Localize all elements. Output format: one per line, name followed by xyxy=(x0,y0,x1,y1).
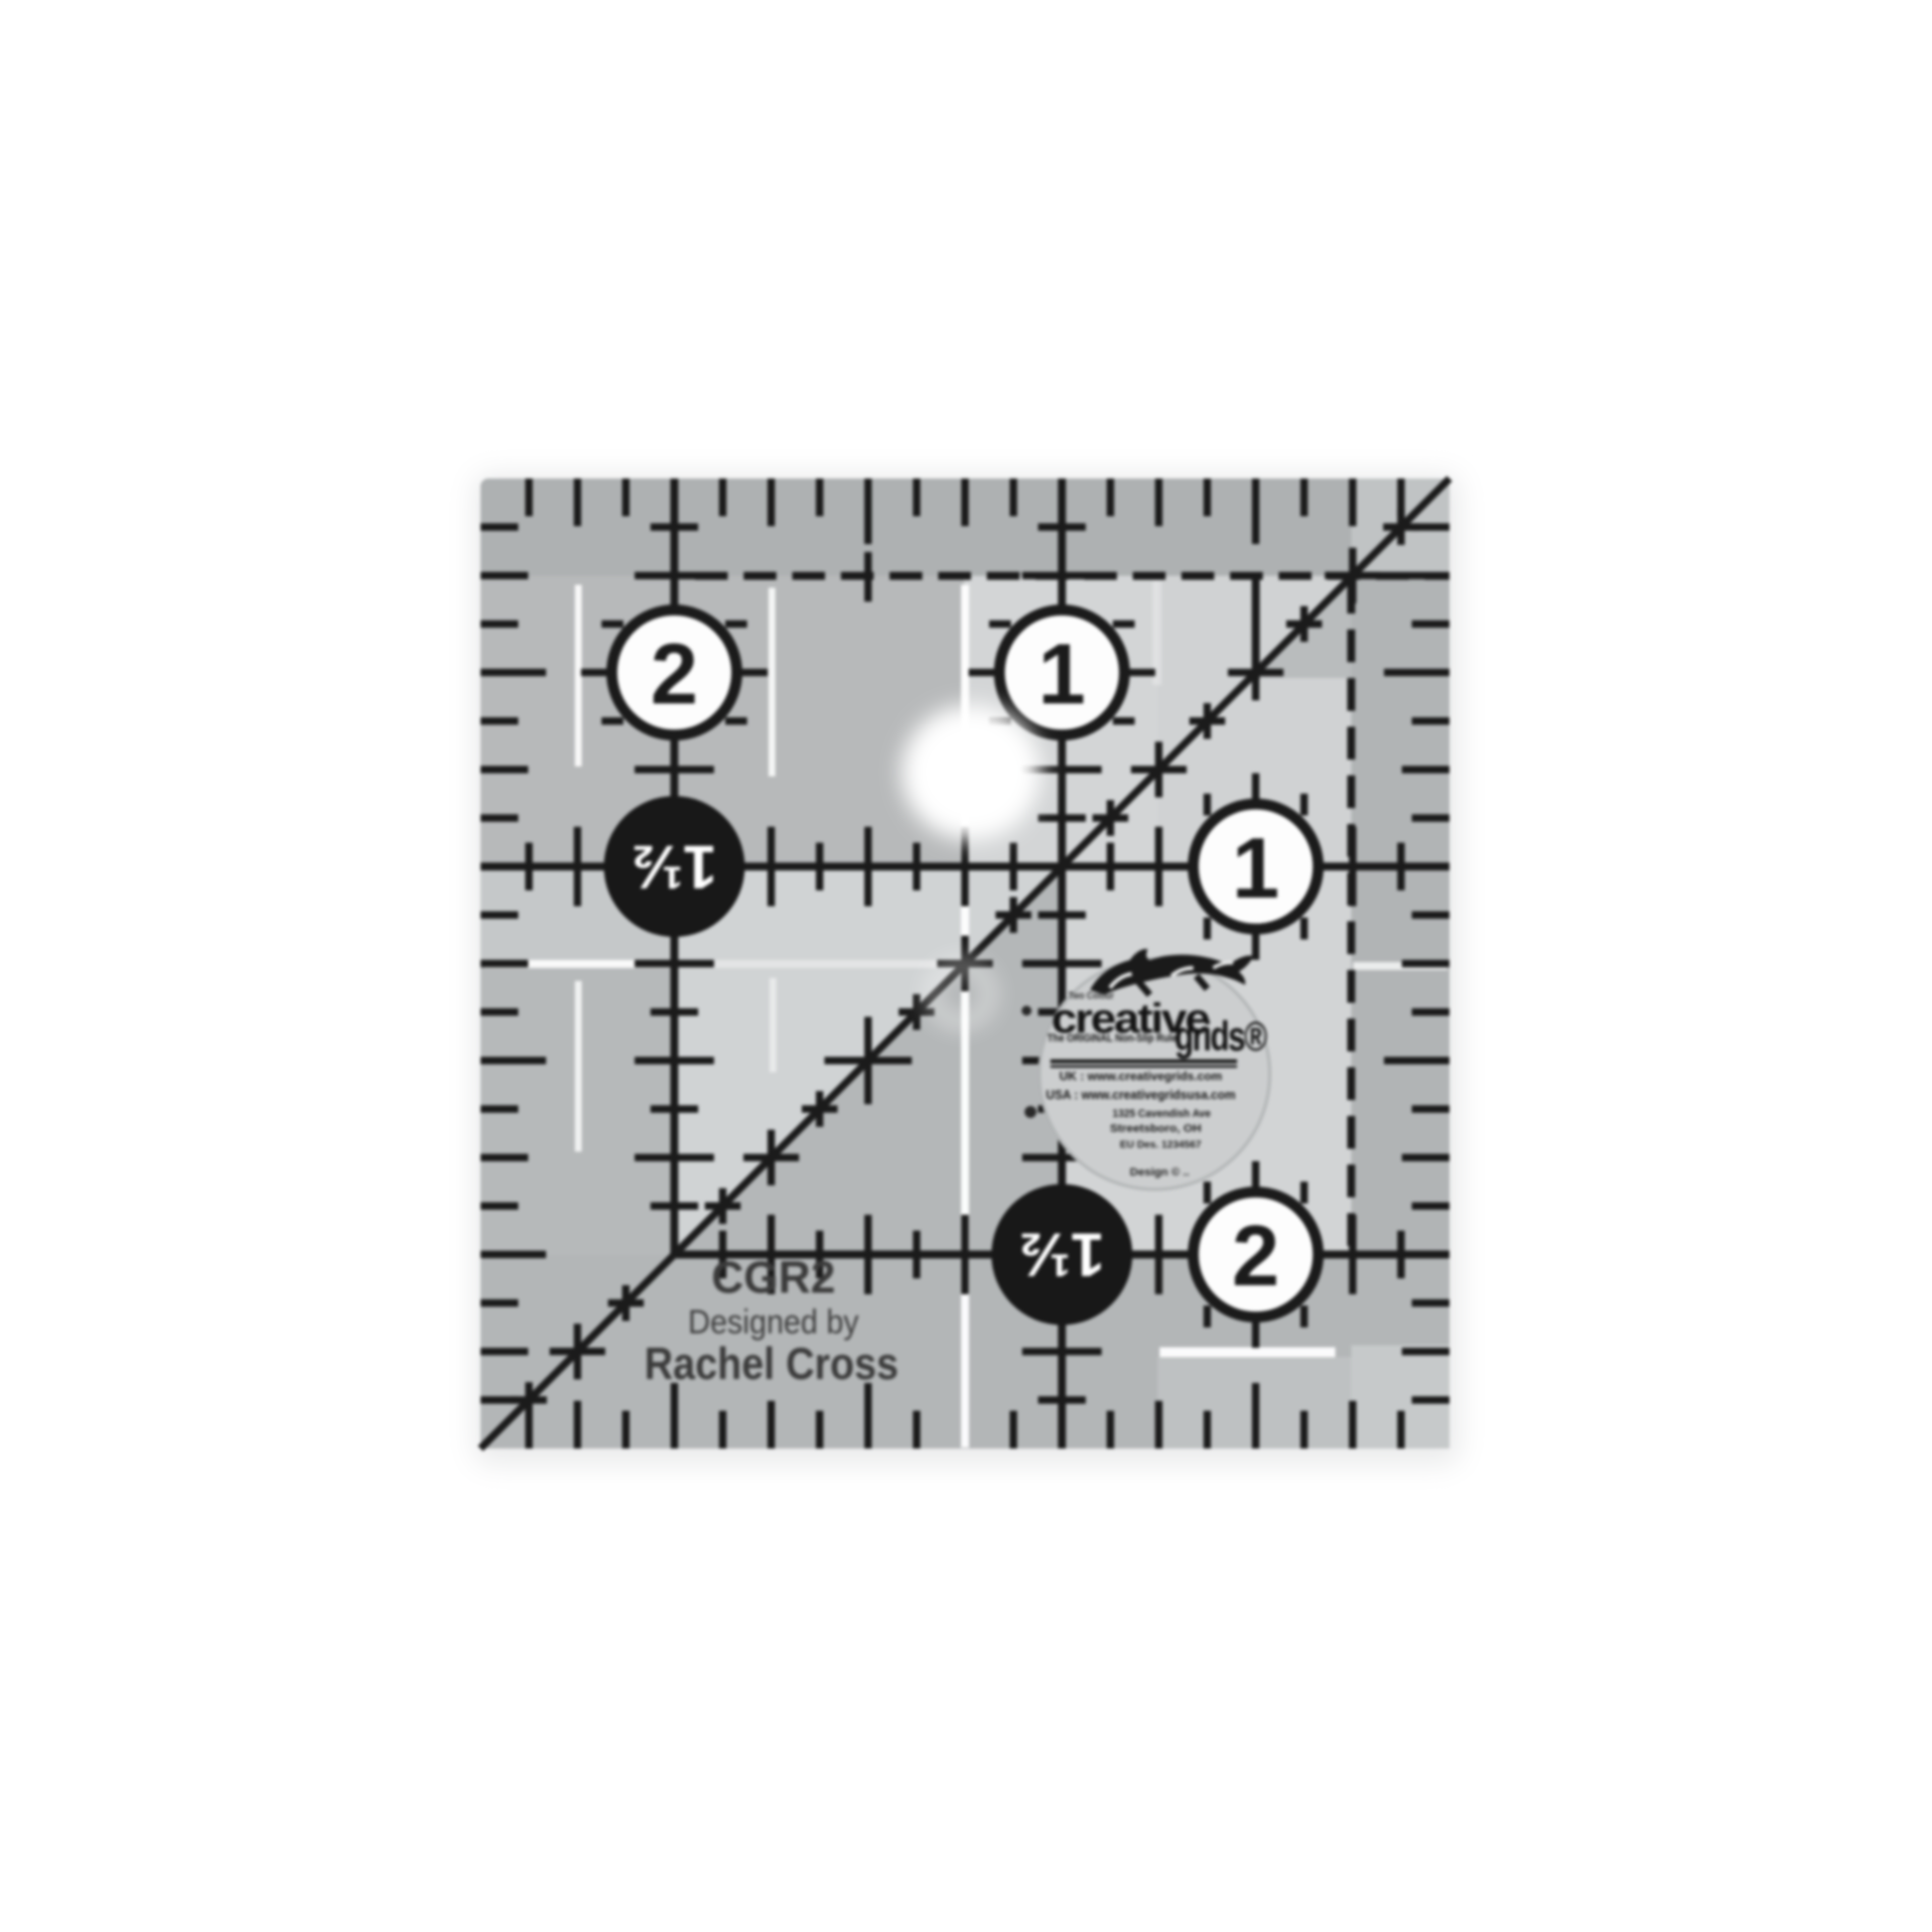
svg-text:1½: 1½ xyxy=(1019,1220,1104,1289)
svg-text:The ORIGINAL Non-Slip Ruler: The ORIGINAL Non-Slip Ruler xyxy=(1047,1033,1181,1044)
svg-text:EU Des. 1234567: EU Des. 1234567 xyxy=(1120,1139,1201,1151)
svg-text:Designed by: Designed by xyxy=(688,1304,859,1341)
svg-text:grids®: grids® xyxy=(1174,1013,1268,1059)
svg-text:1: 1 xyxy=(1232,821,1280,916)
svg-text:Design © ..: Design © .. xyxy=(1130,1167,1189,1178)
svg-text:Rachel Cross: Rachel Cross xyxy=(644,1338,898,1389)
svg-text:2: 2 xyxy=(1232,1209,1280,1305)
svg-text:UK : www.creativegrids.com: UK : www.creativegrids.com xyxy=(1059,1069,1222,1083)
svg-text:1: 1 xyxy=(1038,626,1086,722)
svg-text:2: 2 xyxy=(650,626,698,722)
svg-text:1½: 1½ xyxy=(631,832,717,900)
svg-text:CGR2: CGR2 xyxy=(711,1252,835,1303)
svg-text:1325 Cavendish Ave: 1325 Cavendish Ave xyxy=(1113,1108,1211,1120)
svg-text:USA : www.creativegridsusa.com: USA : www.creativegridsusa.com xyxy=(1046,1088,1236,1102)
svg-text:Streetsboro, OH: Streetsboro, OH xyxy=(1110,1123,1201,1135)
